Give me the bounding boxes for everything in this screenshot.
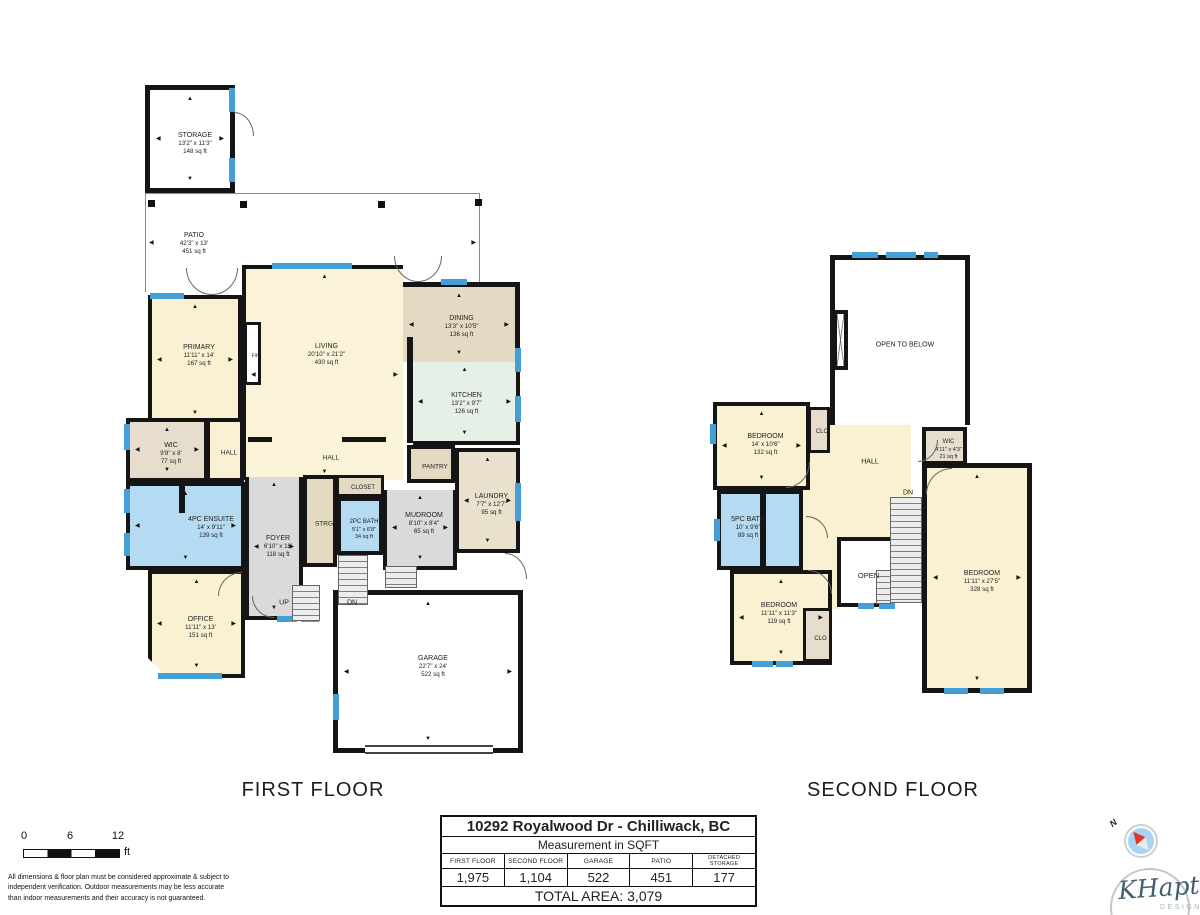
- door-swing: [234, 112, 254, 136]
- window-marker: [924, 252, 938, 258]
- room-2pc-bath: 2PC BATH5'1" x 6'8"34 sq ft: [337, 497, 383, 555]
- plan-text-label: HALL: [323, 455, 339, 462]
- room-label: FOYER6'10" x 18'118 sq ft: [264, 534, 292, 560]
- dimension-arrow-icon: ▲: [485, 457, 491, 463]
- disclaimer-text: All dimensions & floor plan must be cons…: [8, 873, 230, 904]
- first-floor-title: FIRST FLOOR: [242, 779, 385, 802]
- scale-bar-rule: [23, 849, 120, 858]
- table-area-value: 451: [629, 869, 692, 886]
- scale-tick-12: 12: [112, 830, 124, 842]
- staircase: [385, 566, 417, 588]
- room-label: GARAGE22'7" x 24'522 sq ft: [418, 654, 448, 680]
- dimension-arrow-icon: ◀: [344, 669, 349, 675]
- room-label: 2PC BATH5'1" x 6'8"34 sq ft: [350, 519, 379, 541]
- dimension-arrow-icon: ▼: [164, 467, 170, 473]
- summary-table: 10292 Royalwood Dr - Chilliwack, BC Meas…: [440, 815, 757, 907]
- room-label: KITCHEN13'2" x 9'7"126 sq ft: [451, 391, 482, 417]
- room-laundry: LAUNDRY7'7" x 12'7"95 sq ft▲▼◀▶: [455, 448, 520, 553]
- room-label: OPEN TO BELOW: [876, 340, 934, 349]
- room-mudroom: MUDROOM8'10" x 8'4"65 sq ft▲▼◀▶: [383, 490, 457, 570]
- window-marker: [776, 661, 793, 667]
- patio-post: [148, 200, 155, 207]
- dimension-arrow-icon: ◀: [933, 575, 938, 581]
- window-marker: [858, 603, 874, 609]
- room-living: LIVING20'10" x 21'2"430 sq ft▲▼◀▶: [242, 265, 403, 480]
- dimension-arrow-icon: ▶: [471, 240, 476, 246]
- room-wic: WIC9'8" x 8'77 sq ft▲▼◀▶: [126, 418, 208, 482]
- room-label: OFFICE11'11" x 13'151 sq ft: [185, 615, 216, 641]
- room-pantry: PANTRY: [407, 445, 455, 483]
- table-area-value: 1,104: [504, 869, 567, 886]
- dimension-arrow-icon: ▲: [759, 411, 765, 417]
- room-storage: STORAGE13'2" x 11'3"148 sq ft▲▼◀▶: [145, 85, 235, 193]
- plan-text-label: UP: [279, 600, 289, 607]
- room-clo: CLO: [808, 407, 830, 453]
- address: 10292 Royalwood Dr - Chilliwack, BC: [442, 817, 755, 836]
- room-closet: CLOSET: [336, 475, 384, 497]
- dimension-arrow-icon: ◀: [392, 525, 397, 531]
- window-marker: [333, 694, 339, 720]
- window-marker: [515, 348, 521, 372]
- plan-text-label: HALL: [861, 459, 879, 466]
- window-marker: [229, 88, 235, 112]
- window-marker: [124, 489, 130, 513]
- room-hall: HALL: [206, 418, 244, 482]
- patio-post: [378, 201, 385, 208]
- patio-post: [475, 199, 482, 206]
- scale-tick-6: 6: [67, 830, 73, 842]
- dimension-arrow-icon: ▲: [462, 367, 468, 373]
- room-label: BEDROOM14' x 10'6"132 sq ft: [747, 432, 783, 458]
- dimension-arrow-icon: ▲: [456, 293, 462, 299]
- room-primary: PRIMARY11'11" x 14'167 sq ft▲▼◀▶: [148, 295, 242, 425]
- dimension-arrow-icon: ▶: [219, 136, 224, 142]
- room-label: CLO: [814, 636, 826, 644]
- room-open-to-below: OPEN TO BELOW: [830, 255, 970, 425]
- wall-segment: [179, 485, 185, 513]
- room-label: LIVING20'10" x 21'2"430 sq ft: [308, 342, 345, 368]
- room-label: PANTRY: [422, 464, 448, 473]
- room-label: 4PC ENSUITE14' x 9'11"139 sq ft: [188, 515, 234, 541]
- window-marker: [944, 688, 968, 694]
- room-label: CLOSET: [351, 485, 375, 493]
- dimension-arrow-icon: ▲: [187, 96, 193, 102]
- room-label: OPEN: [858, 571, 879, 581]
- window-marker: [515, 483, 521, 521]
- dimension-arrow-icon: ◀: [149, 240, 154, 246]
- total-area: TOTAL AREA: 3,079: [442, 886, 755, 905]
- floor-plan-page: PATIO42'3" x 13'451 sq ft◀▶LIVING20'10" …: [0, 0, 1200, 915]
- room-label: 5PC BATH10' x 9'6"89 sq ft: [731, 515, 765, 541]
- dimension-arrow-icon: ◀: [409, 322, 414, 328]
- window-marker: [980, 688, 1004, 694]
- dimension-arrow-icon: ▶: [231, 621, 236, 627]
- window-marker: [441, 279, 467, 285]
- dimension-arrow-icon: ▶: [443, 525, 448, 531]
- table-column-header: FIRST FLOOR: [442, 854, 504, 868]
- dimension-arrow-icon: ▼: [778, 650, 784, 656]
- staircase: [292, 585, 320, 621]
- dimension-arrow-icon: ▲: [778, 579, 784, 585]
- table-area-value: 522: [567, 869, 630, 886]
- window-marker: [886, 252, 916, 258]
- dimension-arrow-icon: ◀: [135, 447, 140, 453]
- table-area-value: 177: [692, 869, 755, 886]
- second-floor-title: SECOND FLOOR: [807, 779, 979, 802]
- garage-door: [365, 745, 493, 754]
- dimension-arrow-icon: ▶: [228, 357, 233, 363]
- dimension-arrow-icon: ▶: [194, 447, 199, 453]
- table-column-header: SECOND FLOOR: [504, 854, 567, 868]
- table-column-header: PATIO: [629, 854, 692, 868]
- compass-icon: [1124, 824, 1158, 858]
- room-label: WIC4'11" x 4'3"21 sq ft: [935, 439, 962, 461]
- plan-text-label: DN: [347, 600, 357, 607]
- dimension-arrow-icon: ▼: [974, 676, 980, 682]
- dimension-arrow-icon: ▼: [183, 555, 189, 561]
- dimension-arrow-icon: ▲: [271, 482, 277, 488]
- dimension-arrow-icon: ▶: [1016, 575, 1021, 581]
- dimension-arrow-icon: ▲: [164, 427, 170, 433]
- dimension-arrow-icon: ◀: [157, 621, 162, 627]
- dimension-arrow-icon: ◀: [251, 372, 256, 378]
- window-marker: [752, 661, 773, 667]
- room-kitchen: KITCHEN13'2" x 9'7"126 sq ft▲▼◀▶: [413, 362, 520, 445]
- room-label: HALL: [221, 450, 237, 459]
- dimension-arrow-icon: ▶: [818, 615, 823, 621]
- scale-tick-0: 0: [21, 830, 27, 842]
- dimension-arrow-icon: ▶: [507, 669, 512, 675]
- window-marker: [150, 293, 184, 299]
- room-label: LAUNDRY7'7" x 12'7"95 sq ft: [475, 492, 508, 518]
- dimension-arrow-icon: ▲: [192, 304, 198, 310]
- door-swing: [505, 553, 527, 579]
- room-label: BEDROOM11'11" x 27'5"328 sq ft: [964, 569, 1000, 595]
- room-label: MUDROOM8'10" x 8'4"65 sq ft: [405, 511, 443, 537]
- room-bedroom: BEDROOM11'11" x 27'5"328 sq ft▲▼◀▶: [922, 463, 1032, 693]
- dimension-arrow-icon: ▼: [456, 350, 462, 356]
- room-label: F/P: [252, 353, 260, 360]
- brand-logo: KHaptive DESIGN: [1104, 864, 1200, 915]
- room-dining: DINING13'3" x 10'5"136 sq ft▲▼◀▶: [403, 282, 520, 362]
- scale-unit: ft: [124, 846, 130, 858]
- dimension-arrow-icon: ▼: [485, 538, 491, 544]
- window-marker: [852, 252, 878, 258]
- wall-segment: [342, 437, 386, 442]
- table-column-header: GARAGE: [567, 854, 630, 868]
- window-marker: [158, 673, 222, 679]
- room-label: DINING13'3" x 10'5"136 sq ft: [445, 314, 479, 340]
- table-header-row: FIRST FLOORSECOND FLOORGARAGEPATIODETACH…: [442, 853, 755, 868]
- window-marker: [272, 263, 352, 269]
- dimension-arrow-icon: ◀: [254, 544, 259, 550]
- logo-subtitle: DESIGN: [1160, 904, 1200, 911]
- dimension-arrow-icon: ▲: [974, 474, 980, 480]
- staircase: [890, 497, 922, 603]
- dimension-arrow-icon: ▶: [393, 372, 398, 378]
- room-4pc-ensuite: 4PC ENSUITE14' x 9'11"139 sq ft▲▼◀▶: [126, 482, 245, 570]
- dimension-arrow-icon: ◀: [157, 357, 162, 363]
- dimension-arrow-icon: ◀: [722, 443, 727, 449]
- dimension-arrow-icon: ▲: [322, 274, 328, 280]
- table-value-row: 1,9751,104522451177: [442, 868, 755, 886]
- dimension-arrow-icon: ▲: [417, 495, 423, 501]
- dimension-arrow-icon: ▶: [504, 322, 509, 328]
- room-label: PATIO42'3" x 13'451 sq ft: [180, 231, 208, 257]
- dimension-arrow-icon: ▶: [506, 399, 511, 405]
- dimension-arrow-icon: ▼: [322, 469, 328, 475]
- room-garage: GARAGE22'7" x 24'522 sq ft▲▼◀▶: [333, 590, 523, 753]
- dimension-arrow-icon: ▲: [183, 491, 189, 497]
- wall-segment: [407, 337, 413, 443]
- wall-segment: [248, 437, 272, 442]
- room-area: [833, 310, 848, 370]
- dimension-arrow-icon: ▲: [425, 601, 431, 607]
- plan-text-label: DN: [903, 490, 913, 497]
- dimension-arrow-icon: ◀: [739, 615, 744, 621]
- room-label: BEDROOM11'11" x 11'3"119 sq ft: [761, 601, 797, 627]
- dimension-arrow-icon: ▲: [194, 579, 200, 585]
- dimension-arrow-icon: ▼: [417, 555, 423, 561]
- dimension-arrow-icon: ◀: [464, 498, 469, 504]
- patio-post: [240, 201, 247, 208]
- table-area-value: 1,975: [442, 869, 504, 886]
- table-column-header: DETACHED STORAGE: [692, 854, 755, 868]
- dimension-arrow-icon: ▼: [187, 176, 193, 182]
- room-label: STRG: [315, 521, 333, 530]
- window-marker: [710, 424, 716, 444]
- staircase: [338, 555, 368, 605]
- dimension-arrow-icon: ▼: [425, 736, 431, 742]
- dimension-arrow-icon: ▼: [462, 430, 468, 436]
- dimension-arrow-icon: ▼: [759, 475, 765, 481]
- window-marker: [124, 533, 130, 556]
- dimension-arrow-icon: ▼: [194, 663, 200, 669]
- room-label: STORAGE13'2" x 11'3"148 sq ft: [178, 131, 212, 157]
- floor-plan-canvas: PATIO42'3" x 13'451 sq ft◀▶LIVING20'10" …: [0, 0, 1200, 915]
- window-marker: [229, 158, 235, 182]
- room-strg: STRG: [303, 475, 337, 567]
- window-marker: [515, 396, 521, 422]
- dimension-arrow-icon: ▶: [796, 443, 801, 449]
- window-marker: [714, 519, 720, 541]
- room-label: WIC9'8" x 8'77 sq ft: [160, 441, 181, 467]
- dimension-arrow-icon: ◀: [156, 136, 161, 142]
- window-marker: [124, 424, 130, 450]
- room-label: CLO: [816, 429, 828, 437]
- measurement-note: Measurement in SQFT: [442, 836, 755, 853]
- dimension-arrow-icon: ◀: [418, 399, 423, 405]
- dimension-arrow-icon: ◀: [135, 523, 140, 529]
- room-label: PRIMARY11'11" x 14'167 sq ft: [183, 343, 215, 369]
- dimension-arrow-icon: ▼: [192, 410, 198, 416]
